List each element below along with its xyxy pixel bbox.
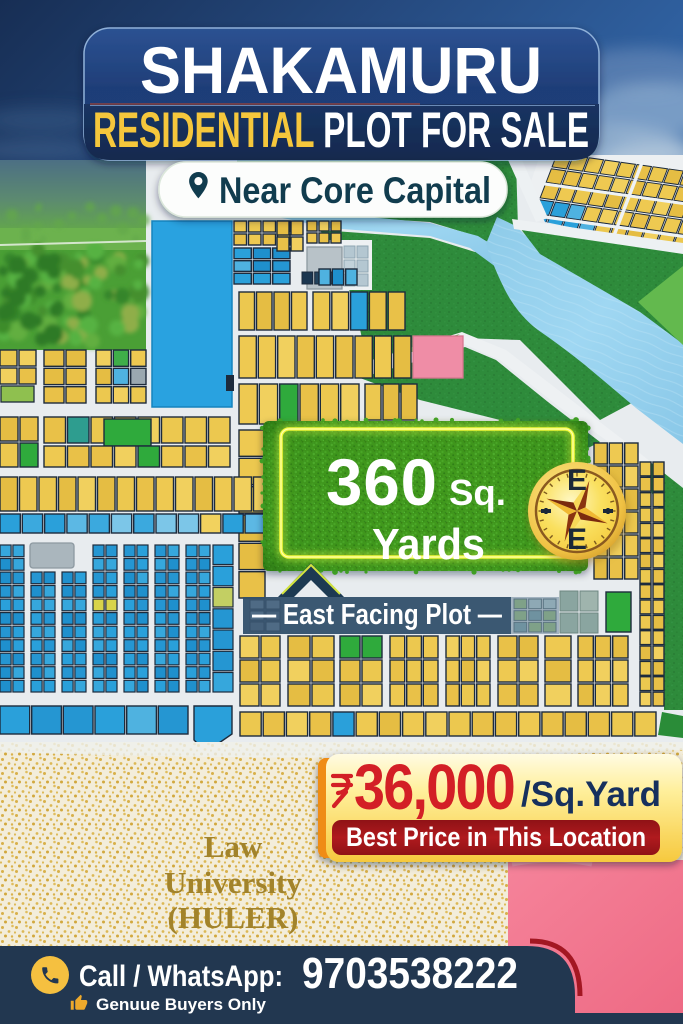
svg-text:(HULER): (HULER) xyxy=(168,900,299,935)
svg-text:Law: Law xyxy=(204,829,263,864)
svg-text:RESIDENTIAL PLOT FOR SALE: RESIDENTIAL PLOT FOR SALE xyxy=(93,102,589,158)
svg-text:360: 360 xyxy=(326,445,438,519)
svg-text:Genuue Buyers Only: Genuue Buyers Only xyxy=(96,995,267,1014)
svg-text:Best Price in This Location: Best Price in This Location xyxy=(346,822,646,852)
svg-text:SHAKAMURU: SHAKAMURU xyxy=(140,33,542,107)
svg-text:9703538222: 9703538222 xyxy=(302,949,518,998)
svg-text:E: E xyxy=(567,464,587,497)
svg-text:Sq.: Sq. xyxy=(449,472,506,513)
svg-text:/Sq.Yard: /Sq.Yard xyxy=(521,775,661,814)
svg-text:Yards: Yards xyxy=(372,520,485,569)
svg-text:E: E xyxy=(567,523,587,556)
svg-text:— East Facing Plot —: — East Facing Plot — xyxy=(252,599,502,631)
svg-text:Near Core Capital: Near Core Capital xyxy=(219,170,491,211)
svg-text:University: University xyxy=(164,865,302,900)
svg-text:Call / WhatsApp:: Call / WhatsApp: xyxy=(79,960,283,993)
svg-text:36,000: 36,000 xyxy=(354,751,514,823)
